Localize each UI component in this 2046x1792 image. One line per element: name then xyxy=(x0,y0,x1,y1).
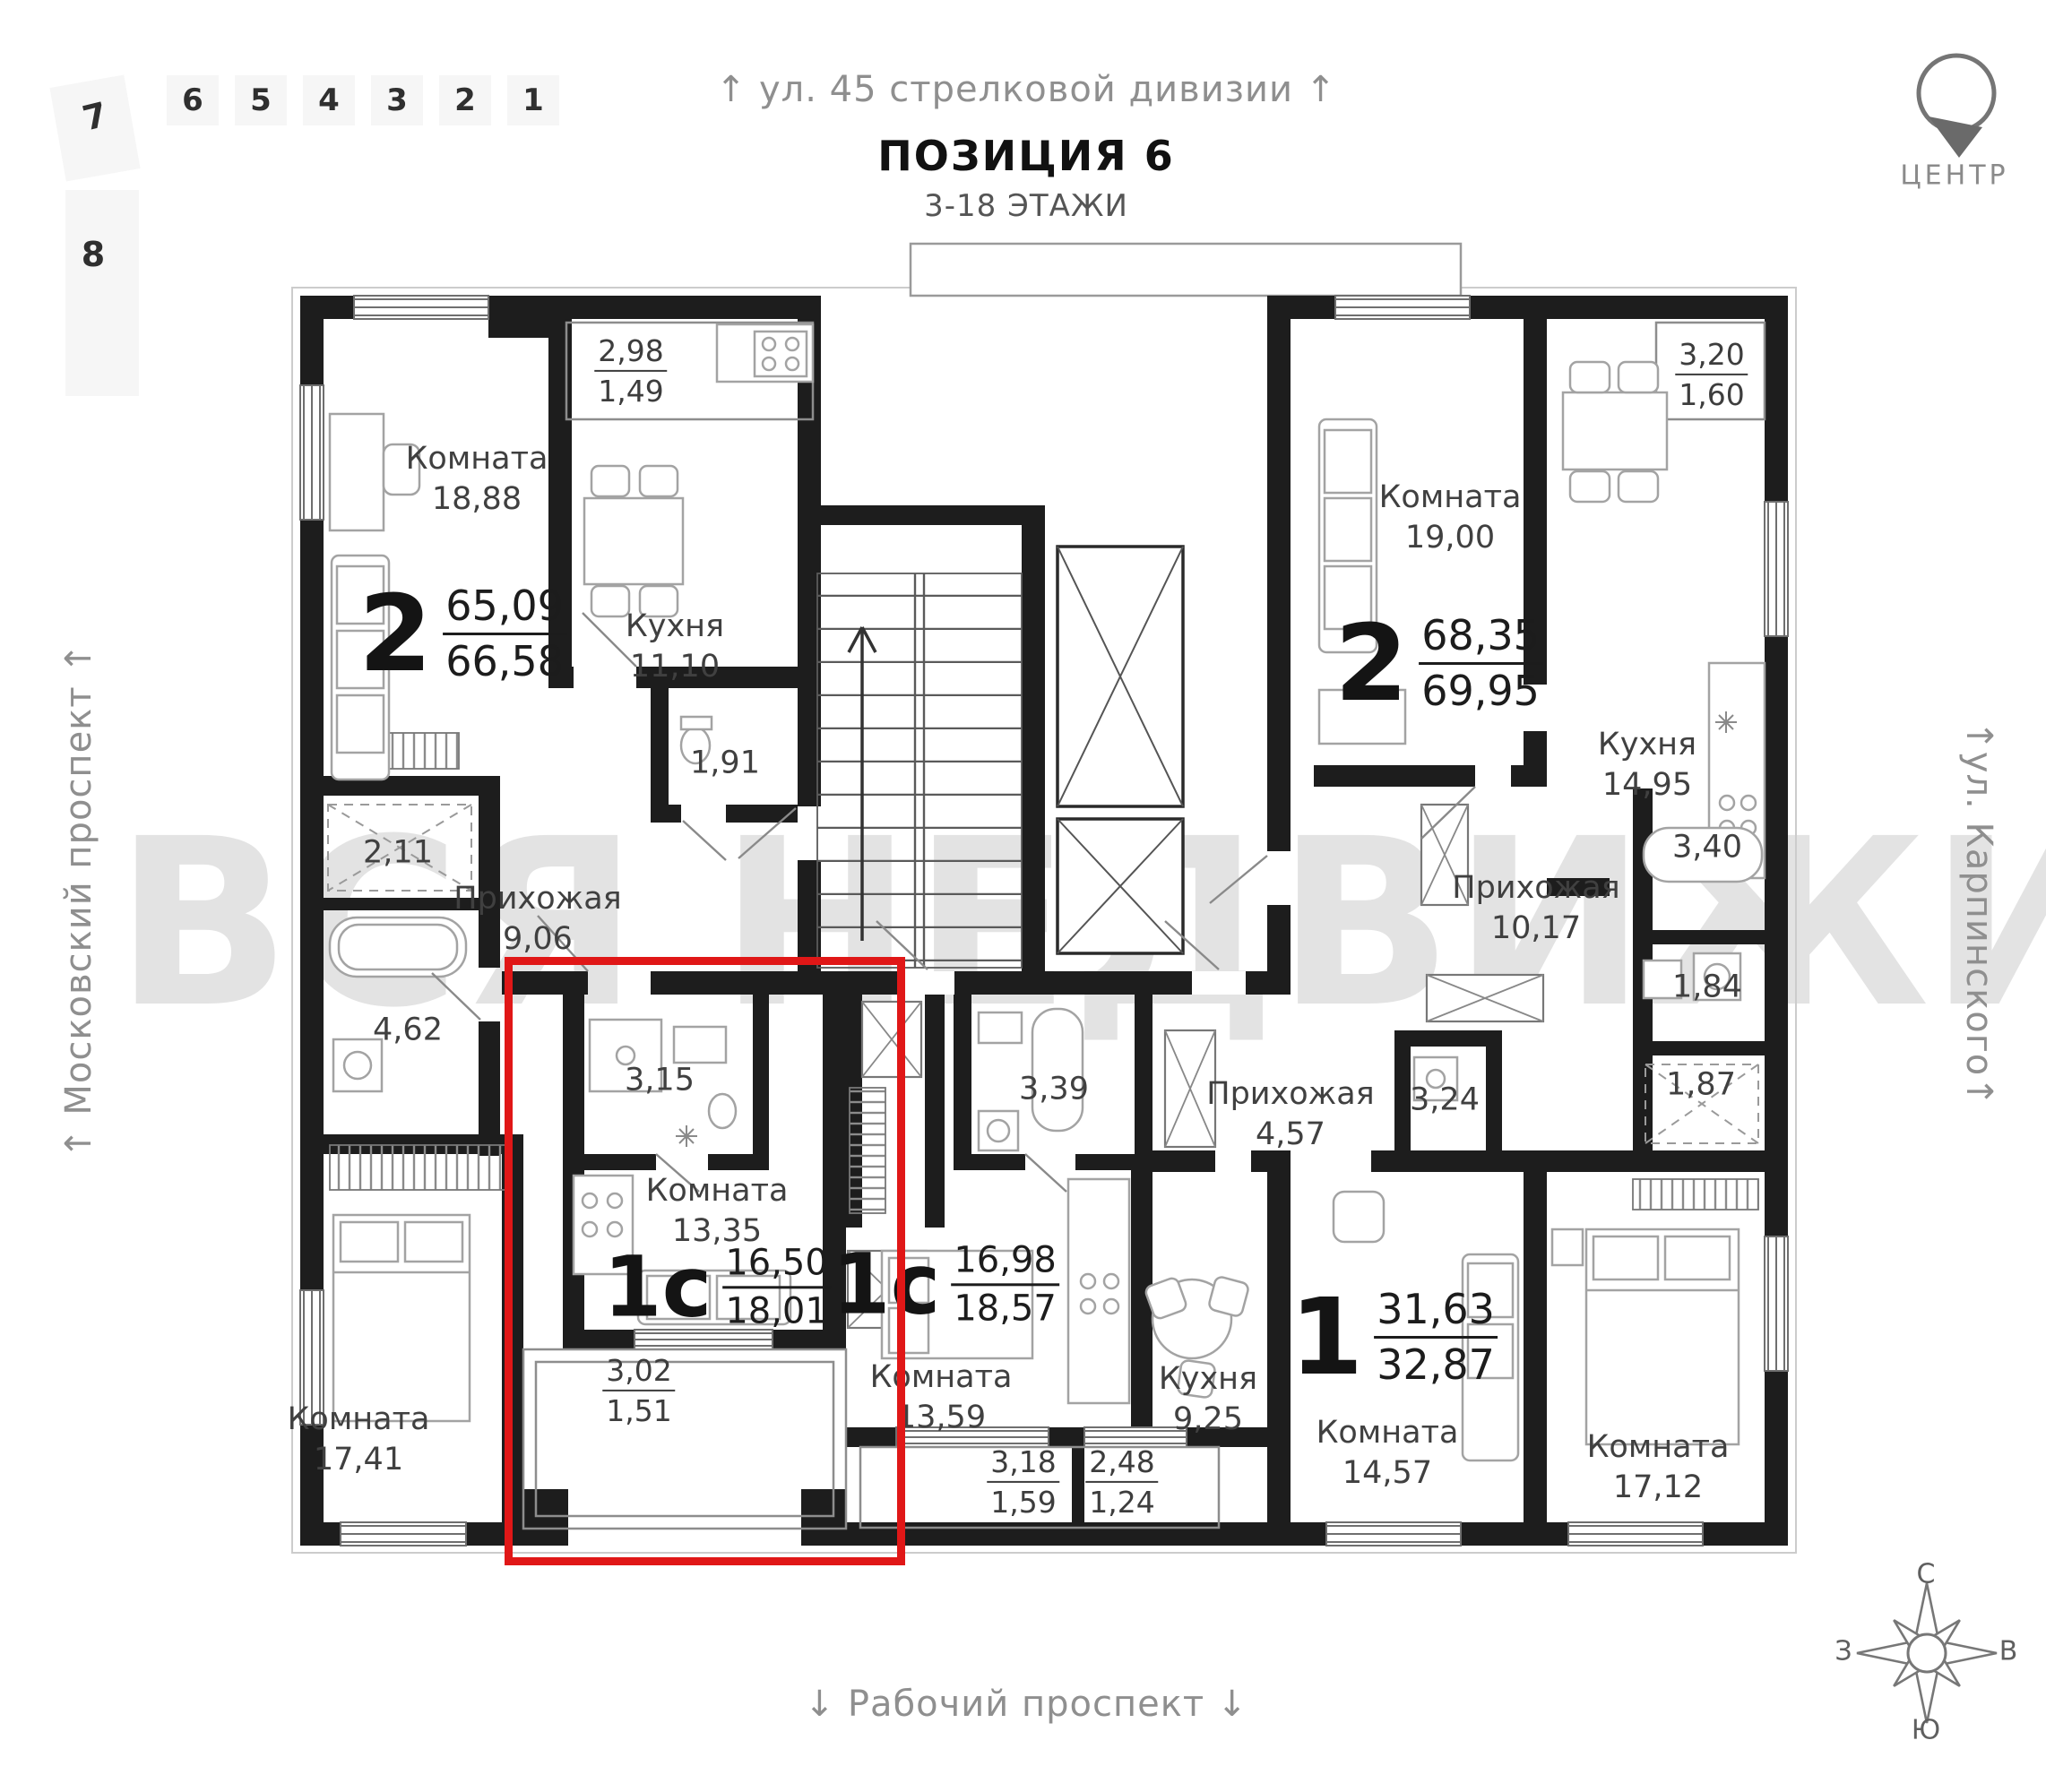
position-box-2[interactable]: 2 xyxy=(439,75,491,125)
apartment-areas: 31,63 32,87 xyxy=(1374,1285,1498,1389)
room-label: Комната14,57 xyxy=(1317,1413,1459,1494)
compass-east: В xyxy=(1999,1636,2018,1667)
apartment-areas: 16,98 18,57 xyxy=(951,1239,1059,1330)
compass-north: С xyxy=(1917,1559,1936,1590)
room-label: 3,39 xyxy=(1019,1070,1089,1110)
room-label: 3,40 xyxy=(1672,828,1742,868)
room-label: Прихожая9,06 xyxy=(453,879,621,960)
position-number-8[interactable]: 8 xyxy=(82,235,105,274)
room-label: Кухня9,25 xyxy=(1159,1359,1257,1440)
room-label: Прихожая10,17 xyxy=(1452,868,1619,949)
apartment-label-left-2k[interactable]: 2 65,09 66,58 xyxy=(358,581,566,686)
street-label-right: ↑ул. Карпинского↑ xyxy=(1958,720,1999,1107)
position-box-5[interactable]: 5 xyxy=(235,75,287,125)
apartment-label-right-2k[interactable]: 2 68,35 69,95 xyxy=(1334,610,1542,716)
apartment-type: 1 xyxy=(1290,1284,1363,1390)
apartment-areas: 68,35 69,95 xyxy=(1419,611,1542,715)
room-label: 1,84 xyxy=(1672,968,1742,1008)
apartment-type: 2 xyxy=(1334,610,1408,716)
balcony-label: 3,201,60 xyxy=(1675,337,1748,412)
balcony-label: 2,481,24 xyxy=(1085,1444,1158,1520)
position-box-1[interactable]: 1 xyxy=(507,75,559,125)
room-label: Кухня14,95 xyxy=(1598,725,1696,806)
room-label: Кухня11,10 xyxy=(626,607,724,687)
room-label: Комната19,00 xyxy=(1379,478,1522,558)
compass-rose xyxy=(1857,1583,1997,1723)
floor-plan-page: ВСЯ НЕДВИЖИМОСТЬ xyxy=(0,0,2046,1792)
room-label: 2,11 xyxy=(363,833,433,874)
position-box-3[interactable]: 3 xyxy=(371,75,423,125)
apartment-areas: 65,09 66,58 xyxy=(443,582,566,685)
balcony-label: 3,181,59 xyxy=(987,1444,1059,1520)
room-label: Комната17,12 xyxy=(1587,1427,1730,1508)
compass-west: З xyxy=(1834,1636,1852,1667)
room-label: Комната18,88 xyxy=(406,439,548,520)
room-label: Прихожая4,57 xyxy=(1206,1074,1374,1155)
balcony-label: 2,981,49 xyxy=(594,333,667,409)
page-title: ПОЗИЦИЯ 6 xyxy=(877,132,1174,180)
street-label-top: ↑ ул. 45 стрелковой дивизии ↑ xyxy=(716,69,1336,110)
position-box-6[interactable]: 6 xyxy=(167,75,219,125)
elevator-shafts xyxy=(1058,547,1183,953)
position-strip-8[interactable] xyxy=(65,190,139,396)
street-label-bottom: ↓ Рабочий проспект ↓ xyxy=(805,1684,1248,1725)
apartment-type: 2 xyxy=(358,581,432,686)
staircase xyxy=(817,573,1022,968)
center-direction-icon xyxy=(1919,56,1994,158)
floor-plan-drawing xyxy=(0,0,2046,1792)
highlighted-apartment-outline[interactable] xyxy=(505,957,905,1565)
room-label: 3,24 xyxy=(1410,1081,1480,1121)
room-label: 1,87 xyxy=(1666,1065,1736,1106)
street-label-left: ↑ Московский проспект ↑ xyxy=(58,642,99,1159)
apartment-label-one-room[interactable]: 1 31,63 32,87 xyxy=(1290,1284,1498,1390)
position-box-4[interactable]: 4 xyxy=(303,75,355,125)
center-badge-label: ЦЕНТР xyxy=(1900,160,2008,192)
room-label: 4,62 xyxy=(373,1011,443,1051)
floors-subtitle: 3-18 ЭТАЖИ xyxy=(924,188,1128,224)
room-label: 1,91 xyxy=(690,744,760,784)
room-label: Комната17,41 xyxy=(288,1400,430,1480)
compass-south: Ю xyxy=(1912,1715,1940,1746)
